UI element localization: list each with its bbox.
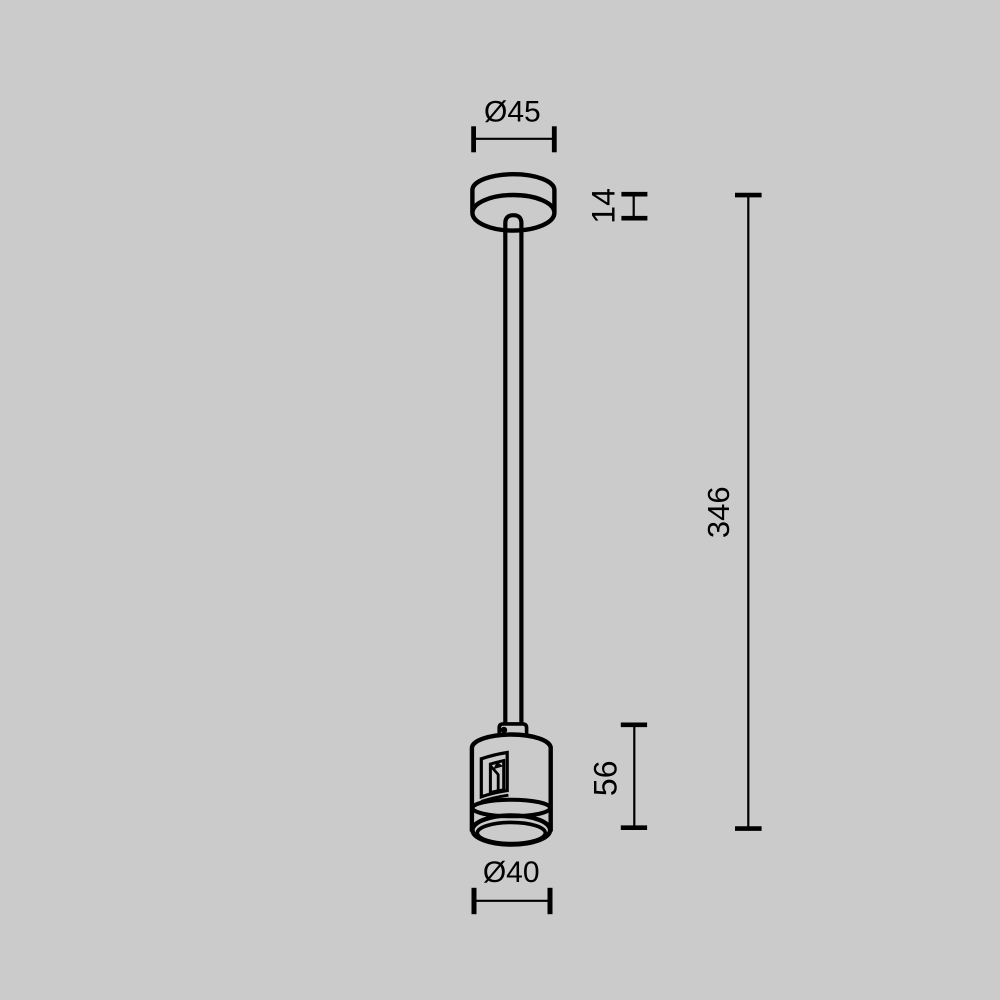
svg-text:346: 346 — [701, 486, 736, 538]
svg-text:Ø40: Ø40 — [483, 856, 540, 889]
svg-text:14: 14 — [586, 188, 622, 224]
svg-text:Ø45: Ø45 — [484, 96, 541, 129]
svg-text:56: 56 — [588, 761, 624, 797]
